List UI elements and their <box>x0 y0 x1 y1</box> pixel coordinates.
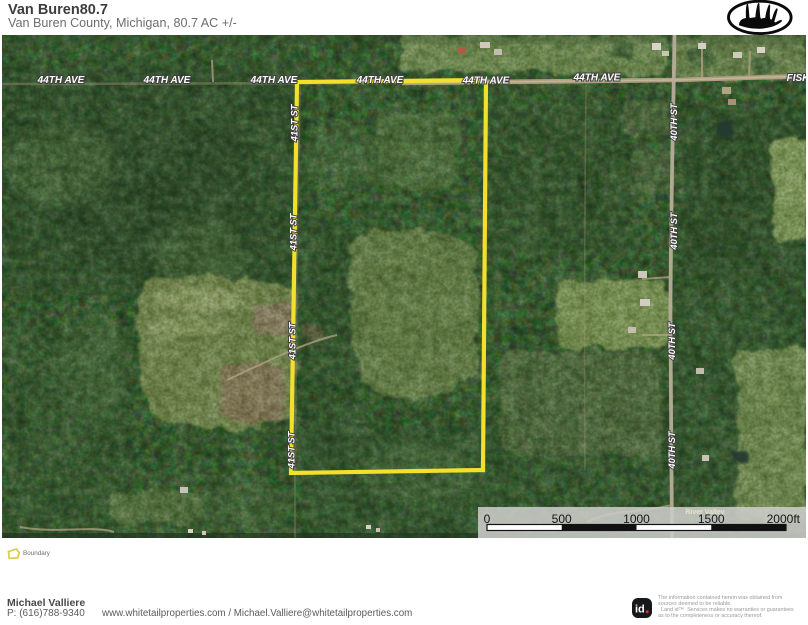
svg-text:44TH AVE: 44TH AVE <box>250 75 298 86</box>
svg-text:44TH AVE: 44TH AVE <box>37 75 85 86</box>
svg-text:41ST ST: 41ST ST <box>289 212 299 251</box>
svg-text:40TH ST: 40TH ST <box>669 102 679 142</box>
svg-text:41ST ST: 41ST ST <box>288 321 298 360</box>
svg-text:40TH ST: 40TH ST <box>669 211 679 251</box>
svg-text:40TH ST: 40TH ST <box>667 430 677 470</box>
svg-text:44TH AVE: 44TH AVE <box>143 75 191 86</box>
svg-text:41ST ST: 41ST ST <box>287 430 297 469</box>
svg-text:FISK: FISK <box>787 73 806 84</box>
svg-text:40TH ST: 40TH ST <box>667 321 677 361</box>
svg-text:44TH AVE: 44TH AVE <box>462 76 510 87</box>
svg-text:44TH AVE: 44TH AVE <box>356 75 404 86</box>
svg-text:44TH AVE: 44TH AVE <box>573 73 621 84</box>
svg-text:41ST ST: 41ST ST <box>290 103 300 142</box>
svg-text:id: id <box>635 604 645 616</box>
